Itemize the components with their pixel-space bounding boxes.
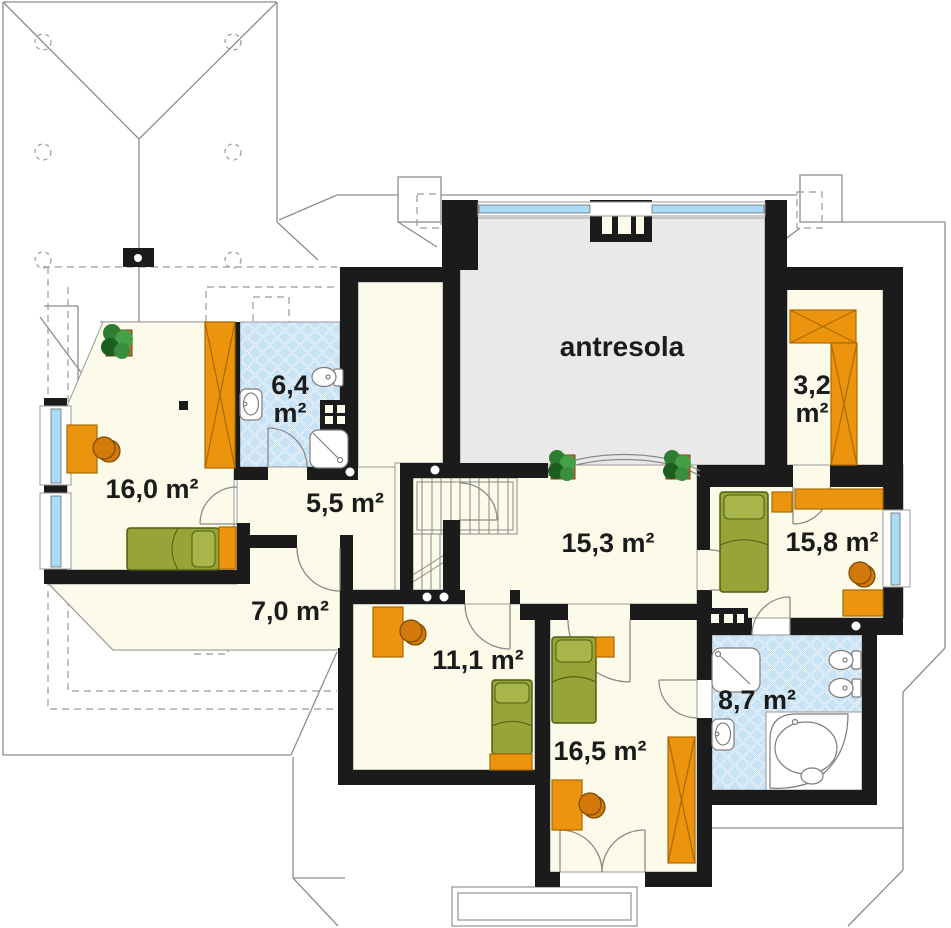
floor-plan: antresola 16,0 m² 6,4 m² 5,5 m² 15,3 m² … [0,0,951,928]
label-3-2-unit: m² [796,398,829,428]
plant-railing-left [548,450,576,481]
wardrobe-3-2-top [790,310,856,343]
room-7-0-upper [237,548,340,586]
label-11-1: 11,1 m² [432,645,524,675]
label-15-3: 15,3 m² [561,528,654,558]
bed-15-8 [720,492,768,592]
bed-16-5 [552,637,596,723]
window-left-1 [40,406,71,485]
window-top-band [478,202,765,216]
floor-plan-svg: antresola 16,0 m² 6,4 m² 5,5 m² 15,3 m² … [0,0,951,928]
toilet-6-4 [312,368,343,387]
sink-6-4 [240,389,262,420]
label-16-5: 16,5 m² [553,736,646,766]
toilet-8-7 [829,651,861,670]
balcony [452,887,637,926]
plant-railing-right [663,450,691,481]
roof-dormer-left [398,177,441,247]
wardrobe-16-5 [668,737,695,863]
label-3-2: 3,2 [793,370,831,400]
desk-11-1 [373,607,403,657]
label-6-4: 6,4 [271,370,309,400]
hall-upper-floor [358,282,443,478]
label-15-8: 15,8 m² [785,527,878,557]
label-6-4-unit: m² [274,398,307,428]
label-mezzanine: antresola [560,331,685,362]
column-16-0 [179,401,188,410]
label-7-0: 7,0 m² [251,596,329,626]
bidet-8-7 [829,679,861,698]
nightstand-15-8 [772,492,792,512]
nightstand-16-0 [219,527,236,569]
nightstand-16-5 [596,637,614,657]
shelf-15-8 [795,489,883,509]
window-right-15-8 [883,510,910,587]
desk-16-5 [552,780,582,830]
bed-11-1 [492,680,532,754]
label-5-5: 5,5 m² [306,488,384,518]
label-8-7: 8,7 m² [718,685,796,715]
desk-15-8 [843,590,883,616]
label-16-0: 16,0 m² [105,474,198,504]
wardrobe-3-2-side [831,343,857,465]
bed-16-0 [127,528,219,570]
wardrobe-16-0 [205,322,235,468]
nightstand-11-1 [490,754,532,770]
shower-6-4 [310,430,348,468]
window-left-2 [40,493,71,569]
sink-8-7 [712,719,734,750]
